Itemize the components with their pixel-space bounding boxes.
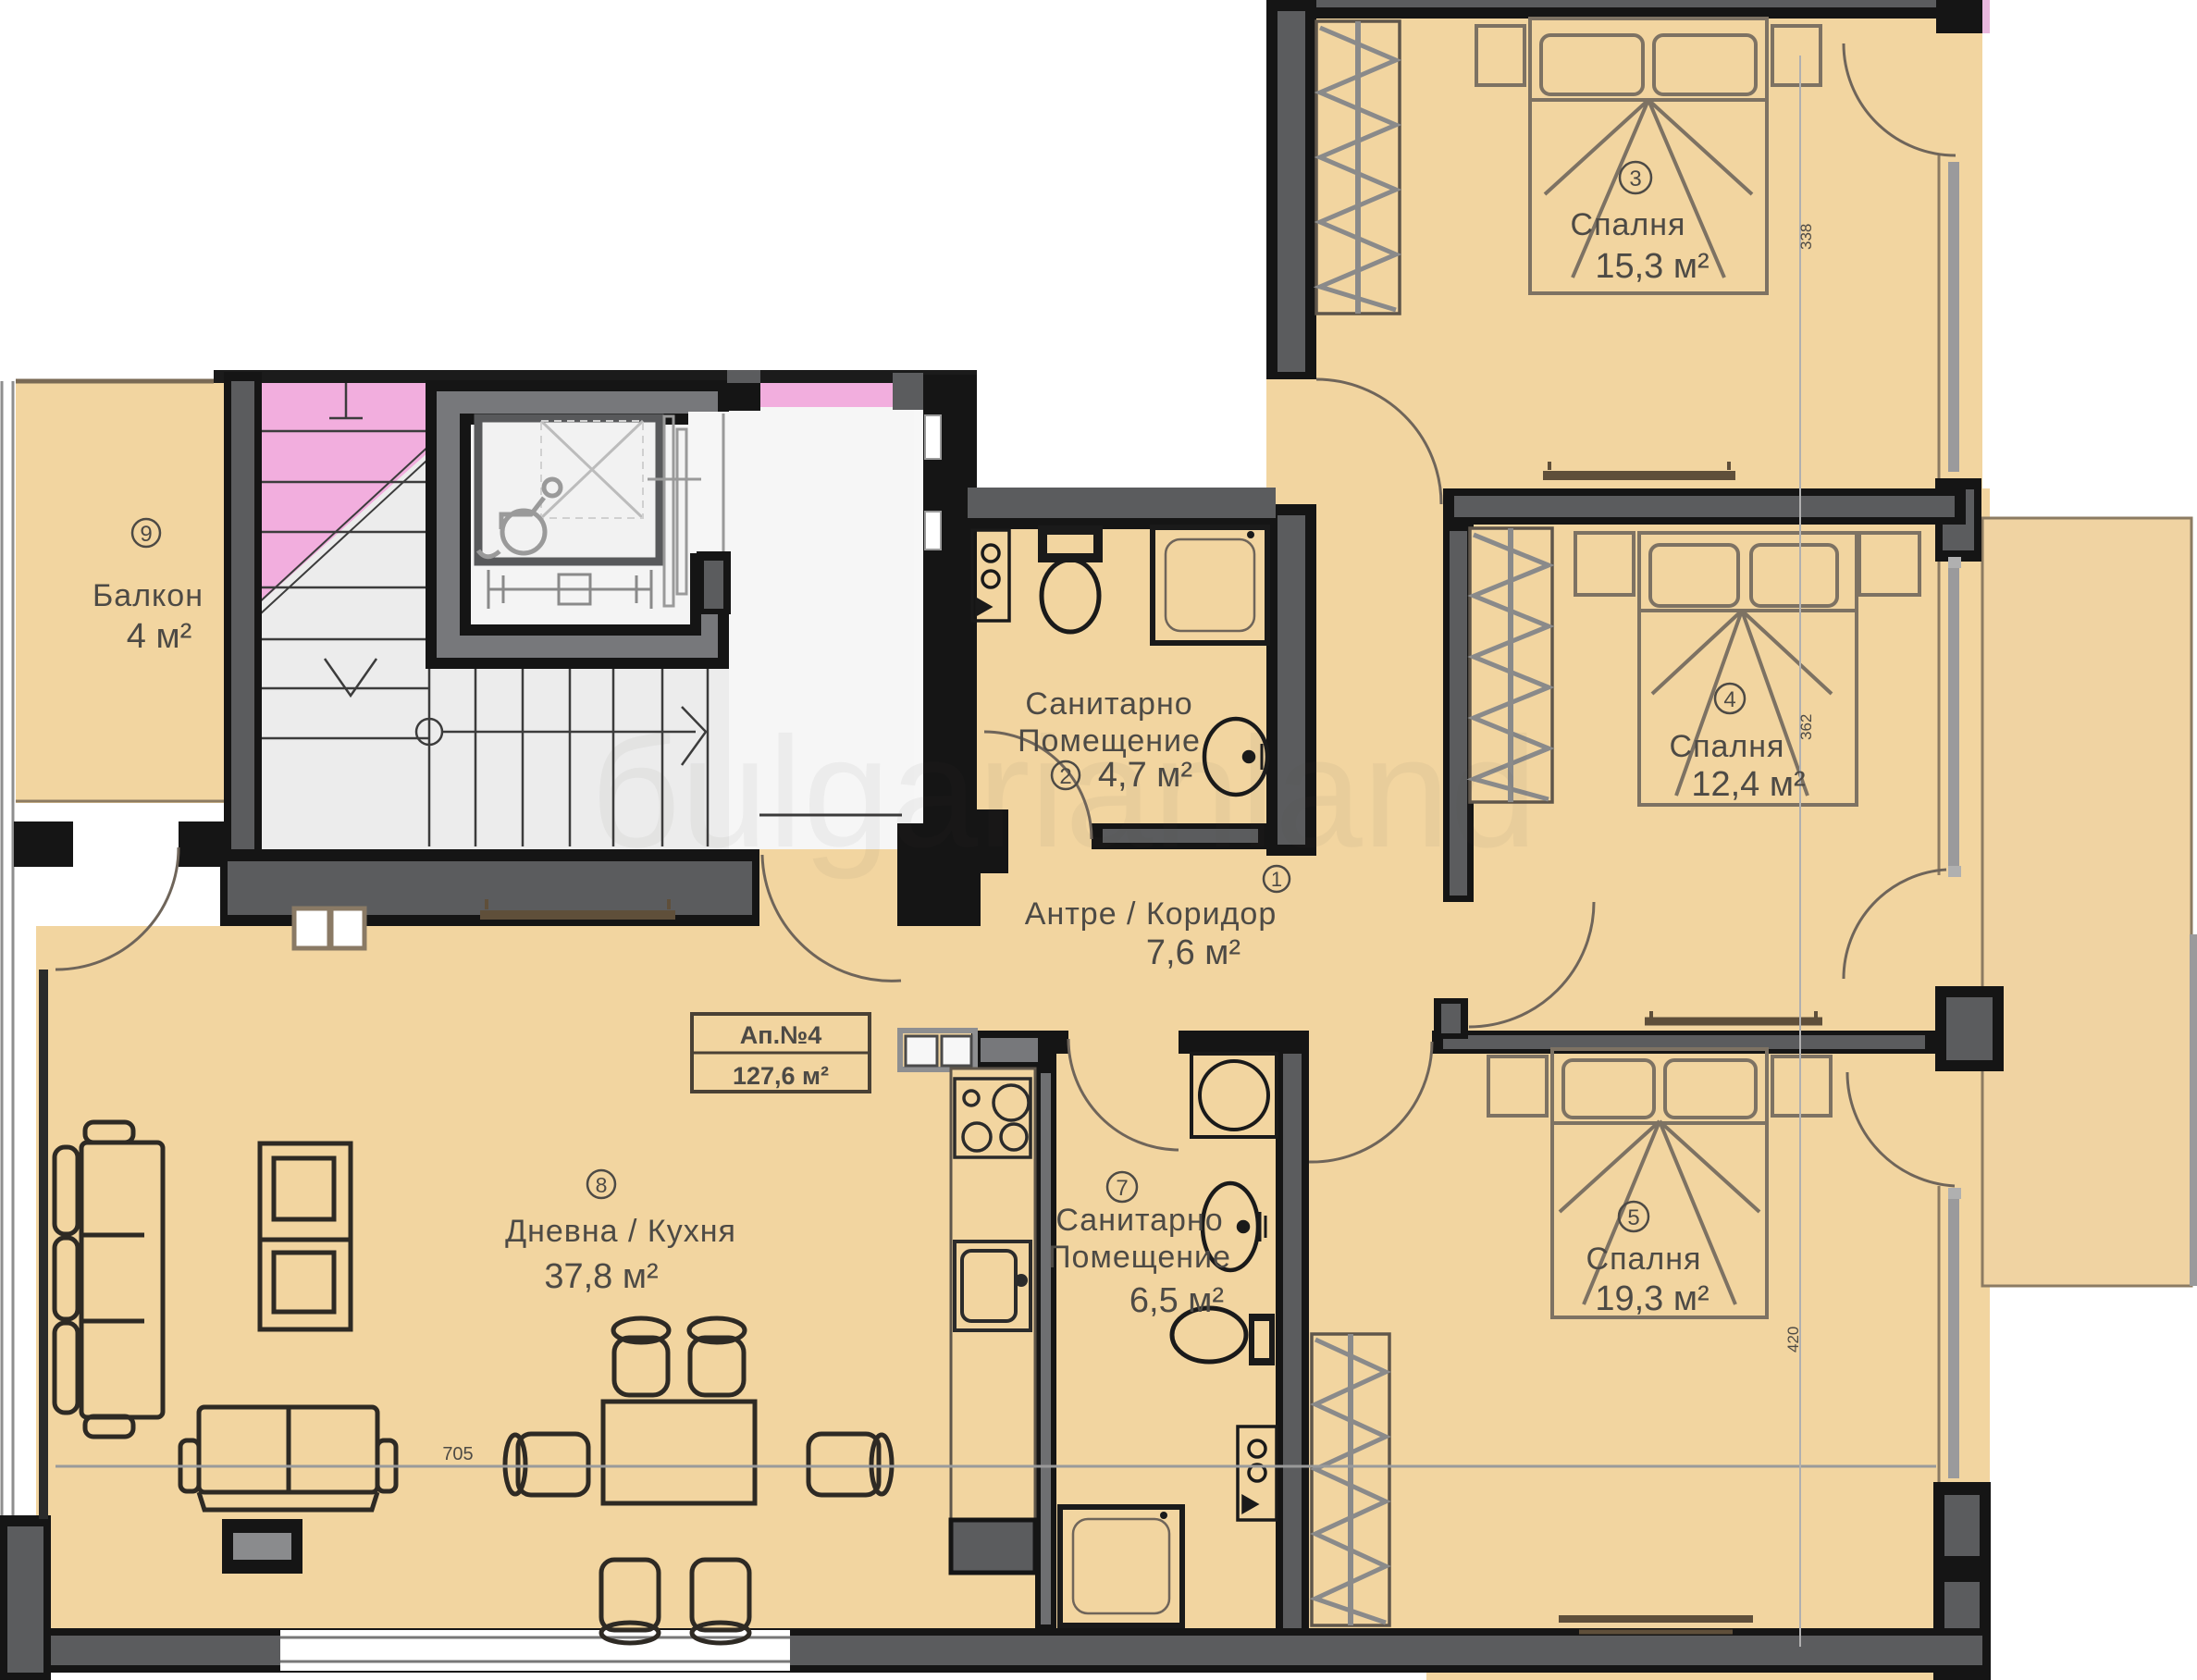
svg-text:Антре / Коридор: Антре / Коридор (1025, 896, 1277, 932)
svg-text:1: 1 (1271, 868, 1282, 891)
svg-text:Помещение: Помещение (1048, 1240, 1231, 1275)
svg-text:Балкон: Балкон (93, 578, 204, 613)
svg-text:420: 420 (1784, 1327, 1802, 1353)
svg-text:2: 2 (1059, 764, 1071, 789)
svg-text:3: 3 (1629, 167, 1641, 191)
svg-text:7: 7 (1116, 1176, 1128, 1201)
svg-text:19,3 м²: 19,3 м² (1595, 1279, 1709, 1318)
svg-text:7,6 м²: 7,6 м² (1146, 933, 1240, 972)
svg-text:362: 362 (1797, 714, 1815, 740)
svg-text:338: 338 (1797, 224, 1815, 250)
svg-text:8: 8 (596, 1173, 608, 1197)
svg-text:6,5 м²: 6,5 м² (1129, 1281, 1224, 1320)
svg-text:Спалня: Спалня (1571, 207, 1686, 242)
svg-text:Спалня: Спалня (1586, 1241, 1702, 1277)
svg-text:Санитарно: Санитарно (1025, 686, 1192, 722)
svg-text:Спалня: Спалня (1670, 729, 1785, 764)
svg-text:9: 9 (140, 522, 152, 547)
svg-text:4: 4 (1723, 687, 1735, 712)
svg-text:4,7 м²: 4,7 м² (1098, 756, 1192, 795)
svg-text:5: 5 (1627, 1205, 1639, 1230)
svg-text:Помещение: Помещение (1018, 723, 1201, 759)
svg-text:37,8 м²: 37,8 м² (544, 1257, 658, 1296)
svg-text:Санитарно: Санитарно (1055, 1203, 1223, 1238)
svg-text:705: 705 (442, 1444, 473, 1464)
svg-text:12,4 м²: 12,4 м² (1691, 765, 1805, 804)
svg-text:127,6 м²: 127,6 м² (733, 1062, 829, 1090)
svg-text:Дневна / Кухня: Дневна / Кухня (505, 1214, 736, 1249)
svg-text:Ап.№4: Ап.№4 (740, 1021, 821, 1049)
svg-text:15,3 м²: 15,3 м² (1595, 247, 1709, 286)
svg-text:4 м²: 4 м² (127, 617, 191, 656)
